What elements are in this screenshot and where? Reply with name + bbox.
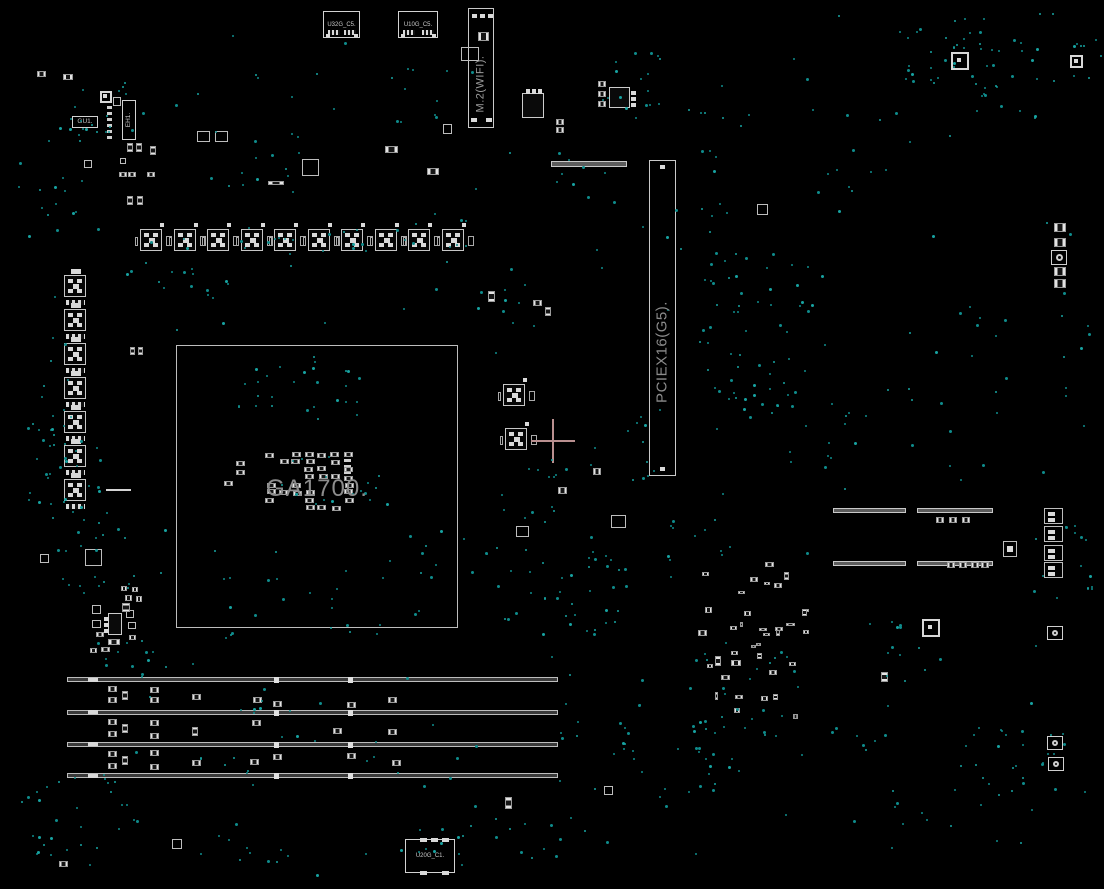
pad <box>278 243 283 247</box>
capacitor[interactable] <box>344 467 353 472</box>
passive-component[interactable] <box>786 623 795 626</box>
test-point <box>797 686 799 688</box>
capacitor[interactable] <box>344 452 353 457</box>
passive-component[interactable] <box>478 32 489 41</box>
passive-component[interactable] <box>273 701 282 707</box>
test-point <box>474 805 477 808</box>
passive-component[interactable] <box>730 626 738 629</box>
component-box[interactable] <box>197 131 210 142</box>
test-point <box>88 485 90 487</box>
passive-component[interactable] <box>385 146 398 153</box>
capacitor[interactable] <box>332 506 341 511</box>
dimm-slot-3[interactable] <box>67 742 558 747</box>
vrm-power-stage[interactable] <box>64 343 86 365</box>
component-box[interactable] <box>84 160 92 168</box>
test-point <box>886 675 888 677</box>
component-box[interactable] <box>443 124 452 134</box>
vrm-power-stage[interactable] <box>308 229 330 251</box>
passive-component[interactable] <box>731 651 738 655</box>
passive-component[interactable] <box>793 714 799 719</box>
pad <box>660 165 665 169</box>
test-point <box>853 820 856 823</box>
vrm-power-stage[interactable] <box>64 411 86 433</box>
component-box[interactable] <box>85 549 102 566</box>
pad <box>321 233 326 237</box>
passive-component[interactable] <box>108 686 117 692</box>
passive-component[interactable] <box>936 517 944 523</box>
test-point <box>68 584 70 586</box>
passive-component[interactable] <box>598 101 606 107</box>
test-point <box>707 342 709 344</box>
passive-component[interactable] <box>744 611 751 617</box>
test-point <box>485 552 488 555</box>
capacitor[interactable] <box>306 505 315 510</box>
passive-component[interactable] <box>129 635 136 640</box>
capacitor[interactable] <box>306 459 315 464</box>
passive-component[interactable] <box>192 694 201 700</box>
test-point <box>821 275 824 278</box>
test-point <box>434 114 436 116</box>
vrm-power-stage[interactable] <box>174 229 196 251</box>
capacitor[interactable] <box>292 452 301 457</box>
test-point <box>261 700 263 702</box>
capacitor[interactable] <box>330 452 339 457</box>
test-point <box>306 409 309 412</box>
test-point <box>665 805 668 808</box>
test-point <box>916 31 918 33</box>
test-point <box>171 271 173 273</box>
passive-component[interactable] <box>388 697 397 703</box>
passive-component[interactable] <box>333 728 342 734</box>
passive-component[interactable] <box>101 647 110 652</box>
test-point <box>259 707 262 710</box>
test-point <box>602 99 604 101</box>
passive-component[interactable] <box>150 733 159 739</box>
test-point <box>699 785 702 788</box>
passive-component[interactable] <box>769 670 776 676</box>
test-point <box>1076 43 1078 45</box>
test-point <box>418 851 420 853</box>
test-point <box>854 442 857 445</box>
test-point <box>470 825 472 827</box>
usb-connector-u10g-c5[interactable]: U10G_C5. <box>398 11 438 38</box>
ic-chip[interactable] <box>108 613 122 635</box>
passive-component[interactable] <box>735 695 744 699</box>
test-point <box>85 128 88 131</box>
pad <box>507 398 512 402</box>
passive-component[interactable] <box>775 627 782 631</box>
dimm-slot-2[interactable] <box>67 710 558 715</box>
passive-component[interactable] <box>971 562 979 568</box>
passive-component[interactable] <box>147 172 155 177</box>
passive-component[interactable] <box>1054 267 1066 276</box>
passive-component[interactable] <box>268 181 284 185</box>
passive-component[interactable] <box>505 797 512 809</box>
vrm-power-stage[interactable] <box>64 309 86 331</box>
passive-component[interactable] <box>598 91 606 97</box>
component-box[interactable] <box>757 204 768 215</box>
capacitor[interactable] <box>317 505 326 510</box>
test-point <box>658 103 660 105</box>
connector-4pin[interactable] <box>1044 526 1063 542</box>
pad <box>317 238 323 243</box>
passive-component[interactable] <box>138 347 143 355</box>
test-point <box>80 826 82 828</box>
capacitor[interactable] <box>305 452 314 457</box>
test-point <box>1020 842 1022 844</box>
test-point <box>642 477 645 480</box>
passive-component[interactable] <box>150 687 159 693</box>
passive-component[interactable] <box>558 487 567 494</box>
test-point <box>59 127 62 130</box>
test-point <box>571 603 573 605</box>
passive-component[interactable] <box>137 196 143 205</box>
component-box[interactable] <box>120 158 126 164</box>
passive-component[interactable] <box>108 751 117 757</box>
passive-component[interactable] <box>59 861 68 867</box>
test-point <box>650 52 653 55</box>
test-point <box>49 445 51 447</box>
test-point <box>553 510 555 512</box>
component-box[interactable] <box>92 605 101 614</box>
passive-component[interactable] <box>705 607 712 612</box>
passive-component[interactable] <box>789 662 796 666</box>
test-point <box>712 753 715 756</box>
test-point <box>551 656 553 658</box>
test-point <box>117 528 120 531</box>
passive-component[interactable] <box>545 307 551 316</box>
passive-component[interactable] <box>759 628 767 631</box>
test-point <box>378 475 380 477</box>
component-box[interactable] <box>92 620 101 628</box>
passive-component[interactable] <box>130 347 135 355</box>
passive-component[interactable] <box>63 74 73 80</box>
pad <box>77 347 82 351</box>
passive-component[interactable] <box>763 633 771 636</box>
test-point <box>835 727 838 730</box>
test-point <box>659 58 661 60</box>
component-box[interactable] <box>516 526 529 537</box>
test-point <box>297 136 299 138</box>
test-point <box>704 529 706 531</box>
passive-component[interactable] <box>132 587 138 592</box>
passive-component[interactable] <box>347 702 356 708</box>
connector-4pin[interactable] <box>1044 562 1063 578</box>
test-point <box>128 583 130 585</box>
passive-component[interactable] <box>127 196 133 205</box>
passive-component[interactable] <box>803 630 808 634</box>
component-box[interactable] <box>40 554 49 563</box>
test-point <box>289 253 291 255</box>
vrm-power-stage[interactable] <box>207 229 229 251</box>
pad <box>428 223 432 227</box>
ic-chip[interactable] <box>522 93 544 118</box>
test-point <box>98 585 100 587</box>
pad <box>220 243 225 247</box>
passive-component[interactable] <box>1054 238 1066 247</box>
passive-component[interactable] <box>125 595 132 601</box>
test-point <box>63 501 65 503</box>
test-point <box>275 551 277 553</box>
pad <box>77 357 82 361</box>
test-point <box>726 212 728 214</box>
passive-component[interactable] <box>150 146 156 155</box>
test-point <box>978 727 980 729</box>
passive-component[interactable] <box>119 172 127 177</box>
usb-connector-u20g-c1[interactable]: U20G_C1. <box>405 839 455 873</box>
passive-component[interactable] <box>740 622 744 628</box>
passive-component[interactable] <box>698 630 707 636</box>
test-point <box>561 737 564 740</box>
passive-component[interactable] <box>556 127 564 133</box>
test-point <box>722 687 725 690</box>
pin <box>532 89 536 94</box>
test-point <box>47 214 49 216</box>
passive-component[interactable] <box>122 756 128 765</box>
passive-component[interactable] <box>108 697 117 703</box>
passive-component[interactable] <box>593 468 601 475</box>
vrm-power-stage[interactable] <box>64 445 86 467</box>
test-point <box>58 781 60 783</box>
test-point <box>846 114 849 117</box>
pin-header[interactable] <box>107 106 112 139</box>
passive-component[interactable] <box>556 119 564 125</box>
test-point <box>190 285 193 288</box>
test-point <box>145 651 148 654</box>
passive-component[interactable] <box>738 591 745 594</box>
pin <box>498 392 501 401</box>
test-point <box>225 280 228 283</box>
test-point <box>817 191 820 194</box>
test-point <box>725 642 727 644</box>
test-point <box>722 117 724 119</box>
passive-component[interactable] <box>236 461 245 466</box>
connector-4pin[interactable] <box>1044 545 1063 561</box>
test-point <box>560 732 562 734</box>
test-point <box>996 840 998 842</box>
passive-component[interactable] <box>392 760 401 766</box>
passive-component[interactable] <box>127 143 133 152</box>
pin <box>135 237 138 246</box>
passive-component[interactable] <box>128 172 136 177</box>
passive-component[interactable] <box>252 720 261 726</box>
test-point <box>460 219 463 222</box>
ic-qfn[interactable] <box>1070 55 1083 68</box>
test-point <box>130 270 133 273</box>
passive-component[interactable] <box>750 577 758 582</box>
pin <box>104 629 109 633</box>
usb-connector-u32g-c5[interactable]: U32G_C5. <box>323 11 360 38</box>
passive-component[interactable] <box>192 760 201 766</box>
component-eh1[interactable]: EH1. <box>122 100 136 140</box>
pad <box>420 871 427 875</box>
passive-component[interactable] <box>1054 279 1066 288</box>
component-gu1[interactable]: GU1. <box>72 116 98 128</box>
passive-component[interactable] <box>347 753 356 759</box>
test-point <box>699 721 702 724</box>
test-point <box>892 790 894 792</box>
passive-component[interactable] <box>959 562 967 568</box>
component-box[interactable] <box>172 839 182 849</box>
capacitor[interactable] <box>265 453 274 458</box>
passive-component[interactable] <box>949 517 957 523</box>
passive-component[interactable] <box>122 691 128 700</box>
test-point <box>407 68 409 70</box>
test-point <box>721 554 723 556</box>
test-point <box>528 468 530 470</box>
test-point <box>647 475 649 477</box>
pad <box>245 233 250 237</box>
dimm-notch <box>274 742 279 748</box>
passive-component[interactable] <box>121 586 127 591</box>
passive-component[interactable] <box>757 653 762 659</box>
pad <box>431 838 438 842</box>
passive-component[interactable] <box>224 481 233 486</box>
component-box[interactable] <box>604 786 613 795</box>
passive-component[interactable] <box>784 572 788 579</box>
passive-component[interactable] <box>881 672 888 682</box>
component-box[interactable] <box>215 131 228 142</box>
passive-component[interactable] <box>764 582 770 585</box>
capacitor[interactable] <box>317 466 326 471</box>
connector-4pin[interactable] <box>1044 508 1063 524</box>
test-point <box>996 412 998 414</box>
passive-component[interactable] <box>802 609 807 616</box>
passive-component[interactable] <box>150 764 159 770</box>
passive-component[interactable] <box>773 694 778 700</box>
passive-component[interactable] <box>108 719 117 725</box>
passive-component[interactable] <box>108 639 120 645</box>
m2-slot-segment[interactable] <box>833 508 906 513</box>
test-point <box>701 150 704 153</box>
m2-slot-segment[interactable] <box>917 508 993 513</box>
test-point <box>605 622 607 624</box>
capacitor[interactable] <box>280 459 289 464</box>
test-point <box>80 545 82 547</box>
test-point <box>543 848 545 850</box>
test-point <box>43 844 45 846</box>
capacitor[interactable] <box>317 453 326 458</box>
passive-component[interactable] <box>533 300 542 306</box>
test-point <box>230 634 232 636</box>
vrm-power-stage[interactable] <box>505 428 527 450</box>
ic-qfn[interactable] <box>922 619 940 637</box>
test-point <box>465 245 467 247</box>
test-point <box>991 49 993 51</box>
test-point <box>828 442 830 444</box>
test-point <box>164 529 167 532</box>
test-point <box>998 794 1000 796</box>
vrm-power-stage[interactable] <box>64 275 86 297</box>
pad <box>68 313 73 317</box>
passive-component[interactable] <box>150 720 159 726</box>
passive-component[interactable] <box>427 168 439 175</box>
vrm-power-stage[interactable] <box>442 229 464 251</box>
passive-component[interactable] <box>108 731 117 737</box>
component-box[interactable] <box>128 622 136 629</box>
passive-component[interactable] <box>388 729 397 735</box>
passive-component[interactable] <box>150 750 159 756</box>
passive-component[interactable] <box>756 643 762 646</box>
test-point <box>659 796 661 798</box>
passive-component[interactable] <box>1054 223 1066 232</box>
passive-component[interactable] <box>761 696 769 701</box>
m2-slot-segment[interactable] <box>833 561 906 566</box>
passive-component[interactable] <box>707 664 713 669</box>
test-point <box>42 439 45 442</box>
component-box[interactable] <box>611 515 626 528</box>
passive-component[interactable] <box>236 470 245 475</box>
vrm-power-stage[interactable] <box>408 229 430 251</box>
passive-component[interactable] <box>947 562 955 568</box>
passive-component[interactable] <box>192 727 198 736</box>
vrm-power-stage[interactable] <box>503 384 525 406</box>
passive-component[interactable] <box>136 596 142 602</box>
passive-component[interactable] <box>273 754 282 760</box>
test-point <box>1095 39 1097 41</box>
passive-component[interactable] <box>37 71 46 77</box>
screw-hole-icon <box>1052 740 1058 746</box>
ic-qfn[interactable] <box>100 91 112 103</box>
capacitor[interactable] <box>304 467 313 472</box>
test-point <box>80 844 82 846</box>
component-box[interactable] <box>302 159 319 176</box>
crosshair-h <box>531 440 575 442</box>
connector-label: EH1. <box>110 114 148 126</box>
passive-component[interactable] <box>122 724 128 733</box>
passive-component[interactable] <box>122 603 130 612</box>
passive-component[interactable] <box>962 517 970 523</box>
passive-component[interactable] <box>598 81 606 87</box>
passive-component[interactable] <box>981 562 989 568</box>
vrm-power-stage[interactable] <box>375 229 397 251</box>
passive-component[interactable] <box>488 291 495 302</box>
test-point <box>135 751 138 754</box>
passive-component[interactable] <box>765 562 774 567</box>
vrm-power-stage[interactable] <box>64 479 86 501</box>
passive-component[interactable] <box>250 759 259 765</box>
passive-component[interactable] <box>715 692 718 700</box>
test-point <box>744 727 746 729</box>
test-point <box>480 291 483 294</box>
capacitor[interactable] <box>331 460 340 465</box>
passive-component[interactable] <box>90 648 97 653</box>
connector-slot[interactable] <box>551 161 627 167</box>
test-point <box>239 859 241 861</box>
test-point <box>899 654 901 656</box>
passive-component[interactable] <box>774 583 782 588</box>
test-point <box>97 486 100 489</box>
passive-component[interactable] <box>136 143 142 152</box>
passive-component[interactable] <box>96 632 104 637</box>
passive-component[interactable] <box>702 572 709 576</box>
test-point <box>141 673 144 676</box>
test-point <box>1030 702 1033 705</box>
test-point <box>949 465 951 467</box>
passive-component[interactable] <box>731 660 740 665</box>
passive-component[interactable] <box>108 763 117 769</box>
passive-component[interactable] <box>715 656 721 666</box>
pad <box>220 233 225 237</box>
passive-component[interactable] <box>721 675 729 679</box>
passive-component[interactable] <box>150 697 159 703</box>
test-point <box>106 115 108 117</box>
dimm-slot-4[interactable] <box>67 773 558 778</box>
test-point <box>709 765 712 768</box>
test-point <box>740 292 743 295</box>
test-point <box>793 670 796 673</box>
component-box[interactable] <box>113 97 121 106</box>
